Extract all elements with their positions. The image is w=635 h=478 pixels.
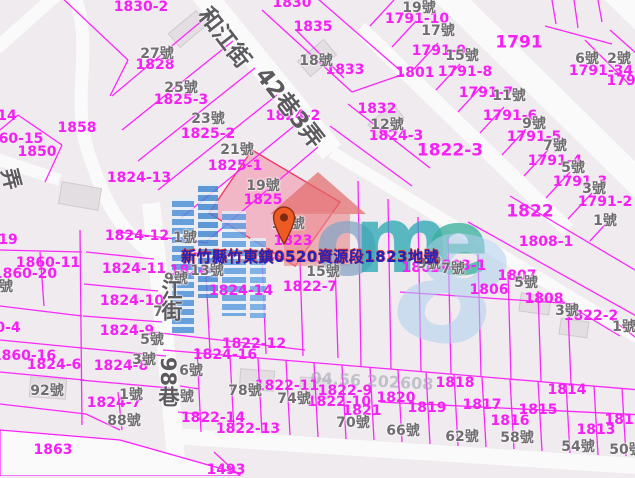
cadastral-map-canvas[interactable]: ome8 04.56 202608 1830-21830183518331828… [0,0,635,476]
selected-parcel-address-label: 新竹縣竹東鎮0520資源段1823地號 [181,246,439,267]
map-marker-icon[interactable] [272,206,296,246]
parcel-boundaries-layer [0,0,635,476]
